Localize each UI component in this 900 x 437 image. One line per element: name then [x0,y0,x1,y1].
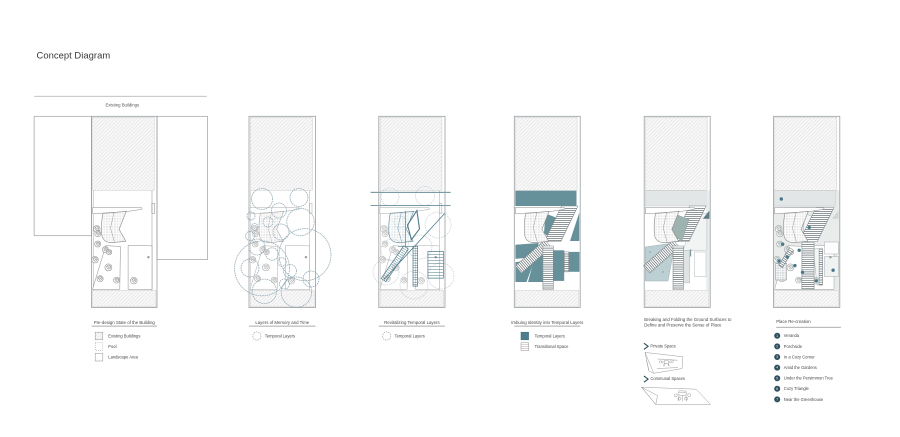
svg-text:Landscape Area: Landscape Area [108,355,138,360]
svg-text:Communal Spaces: Communal Spaces [650,376,685,381]
svg-text:Existing Buildings: Existing Buildings [105,103,139,108]
svg-text:Revitalizing Temporal Layers: Revitalizing Temporal Layers [384,320,440,325]
svg-text:3: 3 [776,355,778,359]
svg-text:Pool: Pool [108,344,116,349]
svg-text:Temporal Layers: Temporal Layers [265,334,295,339]
svg-text:Cozy Triangle: Cozy Triangle [784,386,810,391]
svg-text:Layers of Memory and Time: Layers of Memory and Time [255,320,309,325]
svg-text:Porchside: Porchside [784,344,803,349]
svg-text:1: 1 [776,334,778,338]
svg-text:Concept Diagram: Concept Diagram [37,49,111,60]
svg-text:6: 6 [776,387,778,391]
svg-text:Private Space: Private Space [650,343,676,348]
svg-text:7: 7 [776,398,778,402]
svg-text:2: 2 [776,345,778,349]
svg-text:5: 5 [776,376,778,380]
svg-text:Near the Greenhouse: Near the Greenhouse [784,397,824,402]
svg-text:Amid the Gardens: Amid the Gardens [784,365,817,370]
svg-text:Temporal Layers: Temporal Layers [535,334,565,339]
svg-text:Transitional Space: Transitional Space [535,344,569,349]
svg-text:Imbuing Identity into Temporal: Imbuing Identity into Temporal Layers [511,320,584,325]
svg-text:4: 4 [776,366,778,370]
svg-text:Existing Buildings: Existing Buildings [108,334,140,339]
svg-text:Temporal Layers: Temporal Layers [395,334,425,339]
svg-text:Place Re-creation: Place Re-creation [776,319,811,324]
svg-text:Under the Persimmon Tree: Under the Persimmon Tree [784,376,834,381]
svg-text:Breaking and Folding the Groun: Breaking and Folding the Ground Surfaces… [644,317,732,322]
svg-text:Define and Preserve the Sense: Define and Preserve the Sense of Place [644,323,722,328]
svg-text:Pre-design State of the Buildi: Pre-design State of the Building [94,320,156,325]
svg-text:Veranda: Veranda [784,333,800,338]
svg-text:In a Cozy Corner: In a Cozy Corner [784,354,816,359]
